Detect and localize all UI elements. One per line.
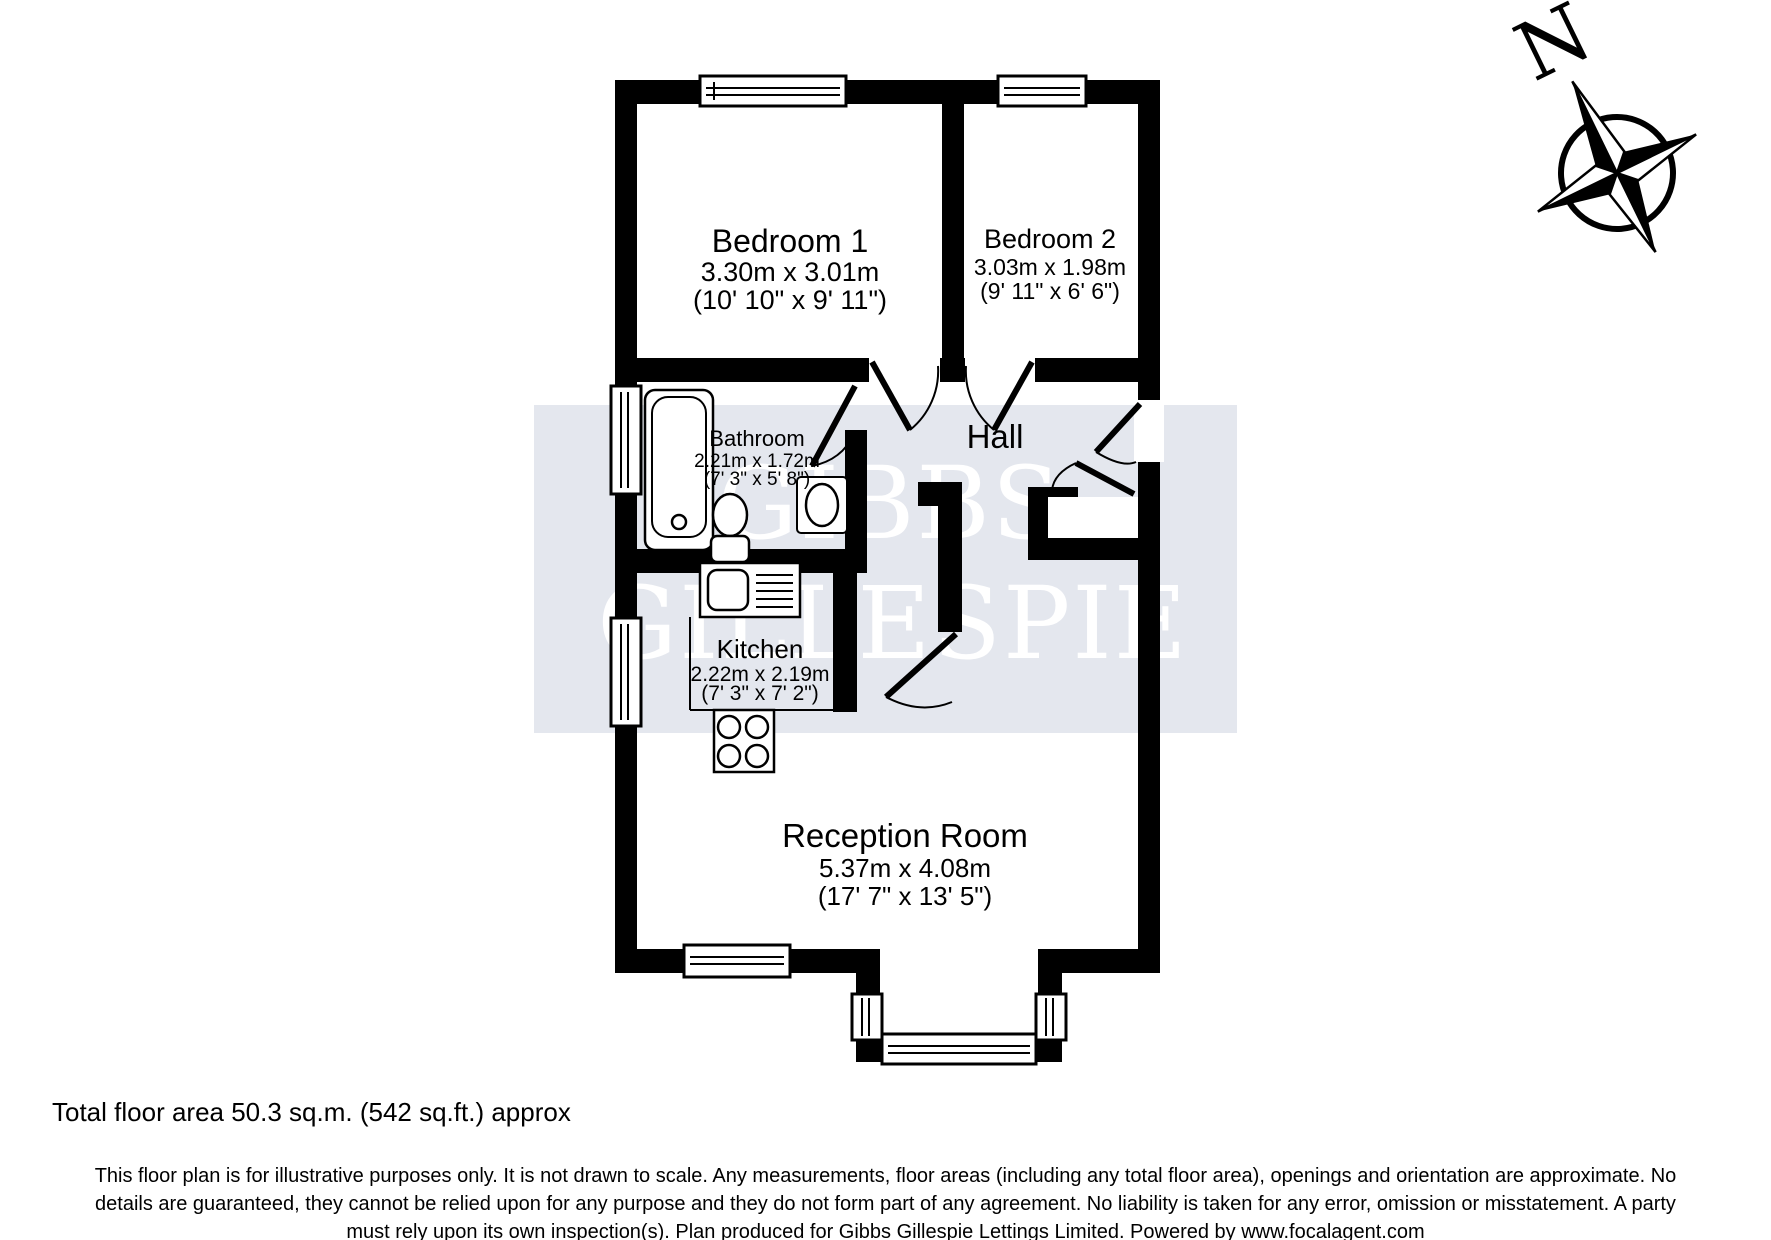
floorplan-page: GIBBS GILLESPIE [0,0,1771,1240]
wall-left [615,80,637,973]
total-floor-area: Total floor area 50.3 sq.m. (542 sq.ft.)… [52,1097,571,1128]
compass-rose: N [1454,0,1735,291]
wall-cupboard-bottom [1028,538,1160,560]
kitchen-sink [700,563,800,617]
bedroom1-label: Bedroom 1 [712,223,869,259]
wall-corridor-right [938,482,962,632]
hall-cupboard [1048,497,1138,538]
window-bay-left [852,994,882,1040]
floorplan-drawing: GIBBS GILLESPIE [0,0,1771,1240]
window-bay-bottom [882,1034,1036,1064]
toilet [711,494,749,562]
disclaimer-line2: details are guaranteed, they cannot be r… [0,1190,1771,1218]
window-bay-right [1036,994,1066,1040]
wall-bedroom-divider [942,92,964,366]
window-bathroom [611,386,641,494]
compass-north-label: N [1501,0,1605,99]
reception-size-metric: 5.37m x 4.08m [819,853,991,883]
reception-size-imperial: (17' 7" x 13' 5") [818,881,992,911]
window-reception [684,945,790,977]
watermark-line2: GILLESPIE [597,565,1189,682]
disclaimer-line3: must rely upon its own inspection(s). Pl… [0,1218,1771,1240]
wall-kitchen-right [833,573,857,712]
disclaimer: This floor plan is for illustrative purp… [0,1162,1771,1240]
disclaimer-line1: This floor plan is for illustrative purp… [0,1162,1771,1190]
wall-right [1138,80,1160,973]
hall-label: Hall [967,418,1024,455]
window-bedroom1 [700,76,846,106]
window-kitchen [611,618,641,726]
bedroom2-size-imperial: (9' 11" x 6' 6") [980,278,1120,304]
bedroom2-label: Bedroom 2 [984,224,1116,254]
wall-hall-divider-mid [940,358,965,382]
kitchen-label: Kitchen [717,634,804,664]
wall-hall-divider-left [615,358,869,382]
kitchen-hob [714,710,774,772]
wall-hall-divider-right [1035,358,1160,382]
bedroom1-size-imperial: (10' 10" x 9' 11") [693,285,887,315]
bedroom1-size-metric: 3.30m x 3.01m [701,257,880,287]
bedroom2-size-metric: 3.03m x 1.98m [974,254,1126,280]
kitchen-size-imperial: (7' 3" x 7' 2") [701,682,818,705]
window-bedroom2 [998,76,1086,106]
reception-label: Reception Room [782,817,1028,854]
bathroom-label: Bathroom [709,426,804,451]
bathroom-size-imperial: (7' 3" x 5' 8") [704,469,810,490]
